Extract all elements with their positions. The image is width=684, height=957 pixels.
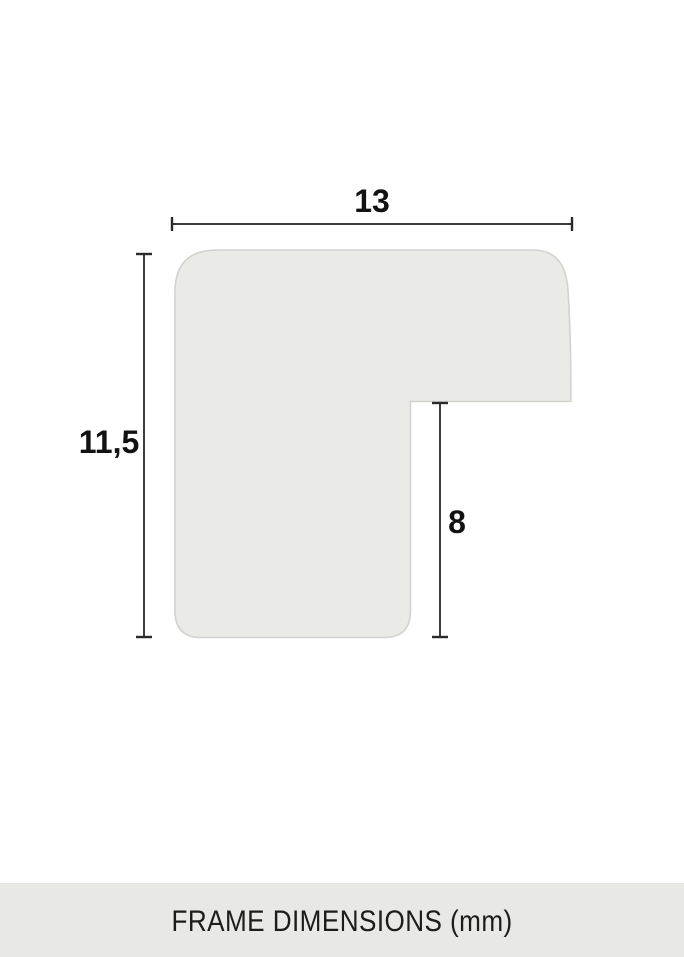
- dimension-rabbet-height: 8: [432, 403, 466, 637]
- footer-bar: FRAME DIMENSIONS (mm): [0, 883, 684, 957]
- dimension-width: 13: [172, 183, 572, 231]
- dimension-height-label: 11,5: [79, 424, 140, 460]
- frame-dimensions-page: 13 11,5 8 FRAME DIMENSIONS (mm): [0, 0, 684, 957]
- frame-profile-diagram: 13 11,5 8: [0, 0, 684, 883]
- dimension-width-label: 13: [354, 183, 390, 219]
- dimension-height: 11,5: [79, 254, 152, 637]
- frame-profile-shape: [175, 250, 571, 638]
- footer-title: FRAME DIMENSIONS (mm): [171, 901, 512, 939]
- dimension-rabbet-label: 8: [448, 504, 466, 540]
